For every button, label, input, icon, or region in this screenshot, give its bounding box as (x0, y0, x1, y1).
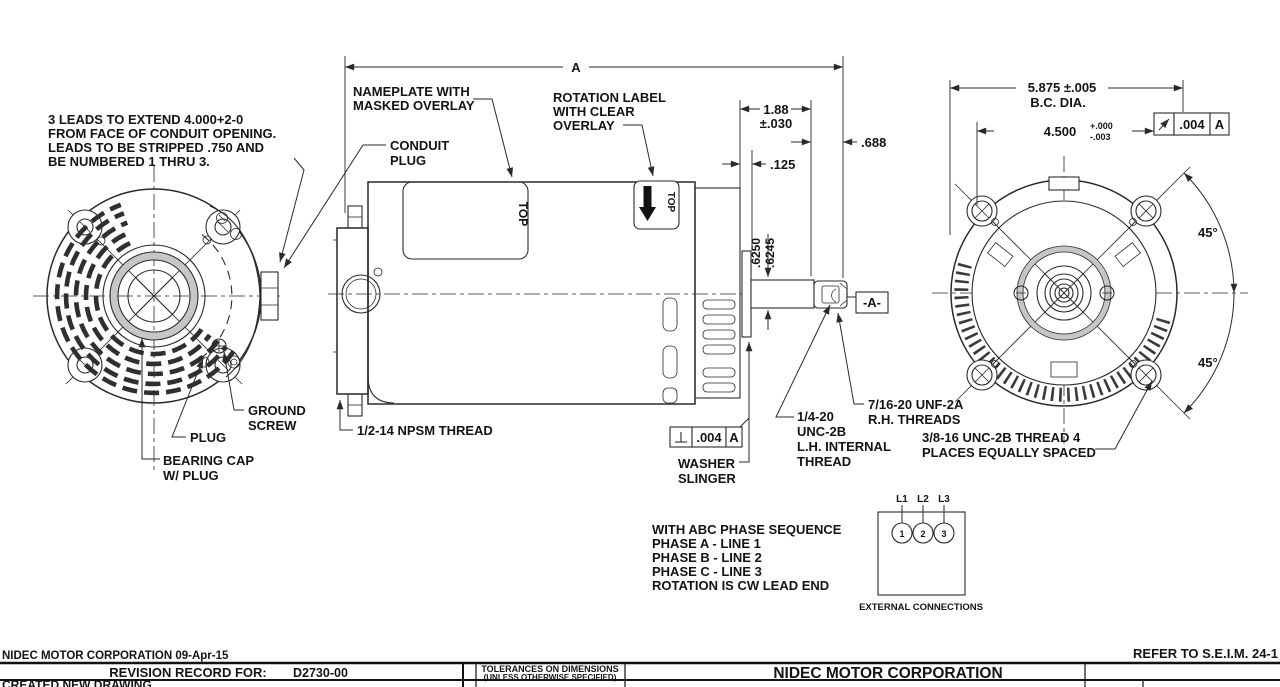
dim-125-text: .125 (770, 157, 795, 172)
dim-688-text: .688 (861, 135, 886, 150)
company-name-text: NIDEC MOTOR CORPORATION (773, 665, 1002, 682)
leads-note-line: 3 LEADS TO EXTEND 4.000+2-0 (48, 112, 243, 127)
refer-note-text: REFER TO S.E.I.M. 24-1 (1133, 646, 1278, 661)
runout-datum-text: A (729, 430, 739, 445)
dim-a-text: A (571, 60, 581, 75)
pilot-tol-plus-text: +.000 (1090, 121, 1113, 131)
angle-upper-text: 45° (1198, 225, 1218, 240)
internal-thread-label: 1/4-20 (797, 409, 834, 424)
conduit-plug-label: CONDUIT (390, 138, 449, 153)
dim-188-text: 1.88 (763, 102, 788, 117)
ground-screw-label: SCREW (248, 418, 297, 433)
phase-note-line: PHASE B - LINE 2 (652, 550, 762, 565)
rotation-top-text: TOP (665, 192, 676, 213)
terminal-number: 2 (920, 529, 925, 539)
internal-thread-label: L.H. INTERNAL (797, 439, 891, 454)
bolt-thread-label: 3/8-16 UNC-2B THREAD 4 (922, 430, 1081, 445)
leads-note-line: FROM FACE OF CONDUIT OPENING. (48, 126, 276, 141)
top-tab (1049, 177, 1079, 190)
conduit-plug-label: PLUG (390, 153, 426, 168)
nameplate-top-text: TOP (516, 202, 530, 226)
npsm-thread-label: 1/2-14 NPSM THREAD (357, 423, 493, 438)
rh-threads-label: 7/16-20 UNF-2A (868, 397, 964, 412)
rh-threads-label: R.H. THREADS (868, 412, 961, 427)
shaft-threaded-tip (814, 281, 847, 308)
plug-label: PLUG (190, 430, 226, 445)
tolerances-text: (UNLESS OTHERWISE SPECIFIED) (484, 673, 617, 682)
runout-value-text: .004 (696, 430, 722, 445)
shaft-dia-lower-text: .6245 (763, 238, 777, 268)
internal-thread-label: THREAD (797, 454, 851, 469)
company-date-text: NIDEC MOTOR CORPORATION 09-Apr-15 (2, 650, 229, 662)
nameplate-label: MASKED OVERLAY (353, 98, 475, 113)
nameplate-label: NAMEPLATE WITH (353, 84, 470, 99)
drawing-number-text: D2730-00 (293, 666, 348, 680)
rotation-label-text: ROTATION LABEL (553, 90, 666, 105)
internal-thread-label: UNC-2B (797, 424, 846, 439)
shaft (751, 280, 814, 308)
bearing-cap-label: W/ PLUG (163, 468, 219, 483)
phase-note-line: ROTATION IS CW LEAD END (652, 578, 829, 593)
phase-note-line: WITH ABC PHASE SEQUENCE (652, 522, 842, 537)
bearing-cap-hub (103, 245, 205, 347)
rotation-label: TOP (634, 181, 679, 229)
rotation-label-text: WITH CLEAR (553, 104, 635, 119)
conduit-hub-edge (261, 272, 278, 320)
datum-a-text: -A- (863, 295, 881, 310)
shaft-dia-upper-text: .6250 (749, 238, 763, 268)
terminal-label: L3 (938, 494, 950, 505)
revision-note-text: CREATED NEW DRAWING. (2, 678, 155, 687)
washer-slinger-label: WASHER (678, 456, 736, 471)
terminal-label: L2 (917, 494, 929, 505)
angle-lower-text: 45° (1198, 355, 1218, 370)
ground-screw-label: GROUND (248, 403, 306, 418)
external-connections-caption: EXTERNAL CONNECTIONS (859, 602, 983, 613)
washer-slinger-label: SLINGER (678, 471, 736, 486)
bearing-cap-label: BEARING CAP (163, 453, 254, 468)
pilot-dia-text: 4.500 (1044, 124, 1077, 139)
bc-dia-text: 5.875 ±.005 (1028, 80, 1097, 95)
bc-dia-label-text: B.C. DIA. (1030, 95, 1086, 110)
rotation-label-text: OVERLAY (553, 118, 615, 133)
phase-note-line: PHASE C - LINE 3 (652, 564, 762, 579)
dim-188-tol-text: ±.030 (760, 116, 792, 131)
phase-note-line: PHASE A - LINE 1 (652, 536, 761, 551)
circ-runout-value-text: .004 (1179, 117, 1205, 132)
leads-note-line: BE NUMBERED 1 THRU 3. (48, 154, 210, 169)
circular-runout-frame: .004 A (1154, 113, 1229, 135)
circ-runout-datum-text: A (1215, 117, 1225, 132)
terminal-number: 3 (941, 529, 946, 539)
datum-a-flag: -A- (856, 292, 888, 313)
pilot-tol-minus-text: -.003 (1090, 132, 1111, 142)
bolt-thread-label: PLACES EQUALLY SPACED (922, 445, 1096, 460)
leads-note-line: LEADS TO BE STRIPPED .750 AND (48, 140, 264, 155)
motor-engineering-drawing: TOP TOP (0, 0, 1280, 687)
terminal-label: L1 (896, 494, 908, 505)
terminal-number: 1 (899, 529, 904, 539)
